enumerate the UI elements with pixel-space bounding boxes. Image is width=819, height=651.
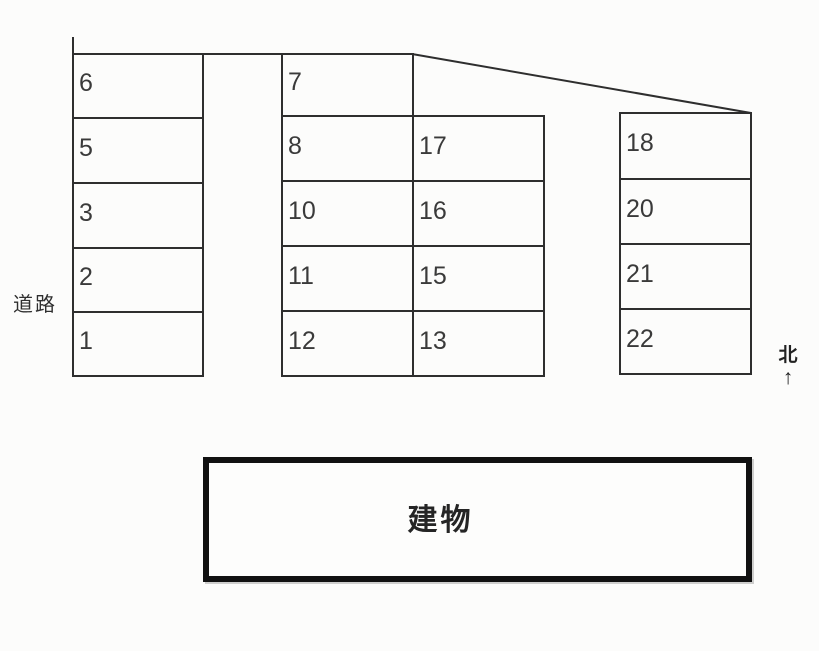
parking-stall-5: 5: [72, 117, 204, 184]
stall-number: 11: [288, 264, 314, 289]
stall-number: 10: [288, 199, 316, 224]
parking-layout-diagram: 6 5 3 2 1 7 8 10 11 12 17 16 15 13 18: [0, 0, 819, 651]
parking-stall-12: 12: [281, 310, 414, 377]
parking-stall-7: 7: [281, 53, 414, 117]
stall-number: 3: [79, 201, 93, 226]
road-label: 道路: [13, 288, 57, 317]
stall-number: 16: [419, 199, 447, 224]
stall-number: 18: [626, 131, 654, 156]
stall-number: 13: [419, 329, 447, 354]
parking-stall-13: 13: [412, 310, 545, 377]
building-outline: 建物: [203, 457, 752, 582]
stall-number: 20: [626, 197, 654, 222]
parking-stall-15: 15: [412, 245, 545, 312]
stall-number: 17: [419, 134, 447, 159]
parking-stall-6: 6: [72, 53, 204, 119]
parking-stall-18: 18: [619, 112, 752, 180]
parking-stall-2: 2: [72, 247, 204, 313]
parking-stall-10: 10: [281, 180, 414, 247]
stall-number: 12: [288, 329, 316, 354]
stall-number: 7: [288, 70, 302, 95]
stall-number: 15: [419, 264, 447, 289]
parking-stall-8: 8: [281, 115, 414, 182]
north-label: 北: [778, 346, 797, 366]
parking-stall-17: 17: [412, 115, 545, 182]
parking-stall-16: 16: [412, 180, 545, 247]
parking-stall-22: 22: [619, 308, 752, 375]
stall-number: 22: [626, 327, 654, 352]
parking-stall-21: 21: [619, 243, 752, 310]
north-arrow-icon: ↑: [783, 367, 794, 388]
stall-number: 8: [288, 134, 302, 159]
north-indicator: 北 ↑: [771, 346, 805, 388]
diagonal-boundary-line: [412, 54, 751, 113]
parking-stall-11: 11: [281, 245, 414, 312]
stall-number: 6: [79, 71, 93, 96]
parking-stall-20: 20: [619, 178, 752, 245]
parking-stall-3: 3: [72, 182, 204, 249]
building-label: 建物: [408, 495, 474, 539]
stall-number: 2: [79, 265, 93, 290]
parking-stall-1: 1: [72, 311, 204, 377]
stall-number: 5: [79, 136, 93, 161]
stall-number: 21: [626, 262, 654, 287]
stall-number: 1: [79, 329, 93, 354]
